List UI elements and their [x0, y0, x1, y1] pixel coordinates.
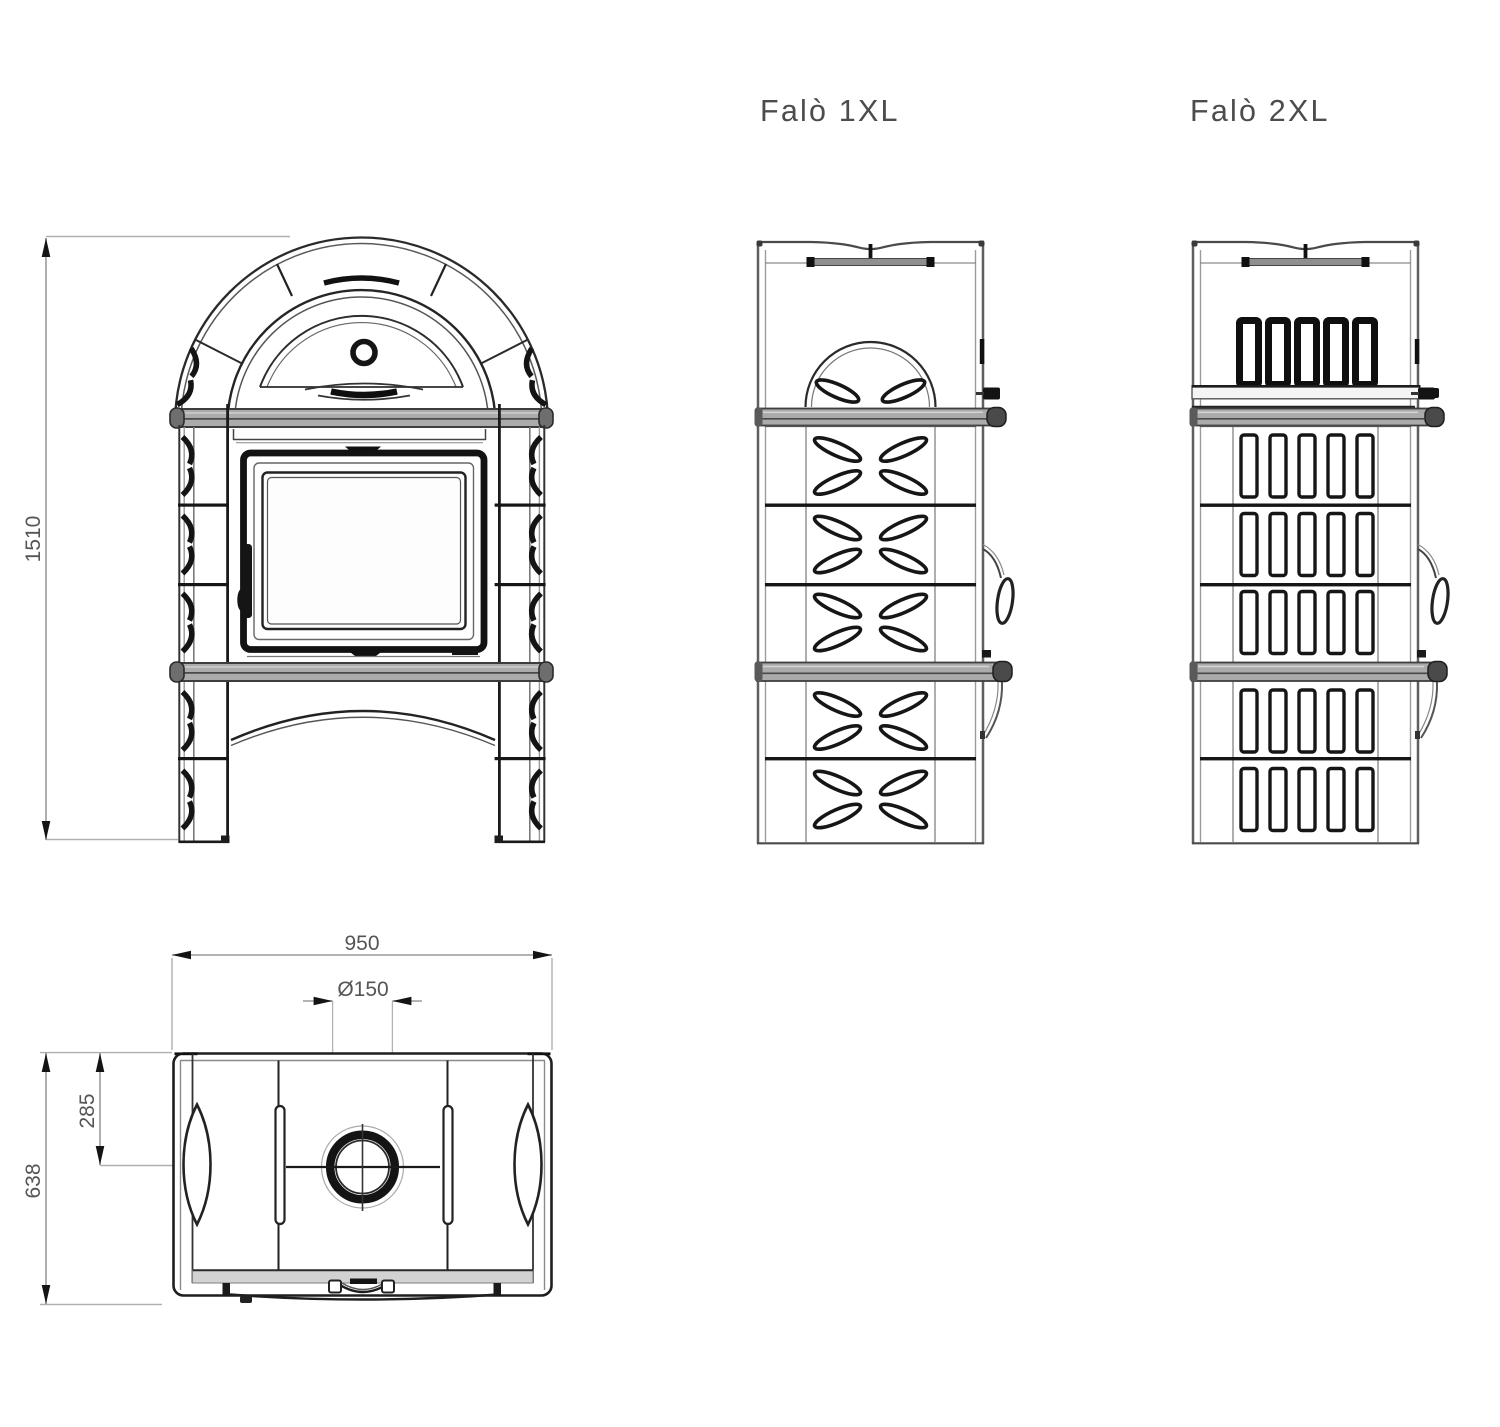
- svg-text:638: 638: [22, 1163, 45, 1198]
- svg-text:950: 950: [344, 932, 379, 955]
- svg-text:285: 285: [76, 1093, 99, 1128]
- svg-text:Falò 2XL: Falò 2XL: [1190, 94, 1330, 128]
- svg-text:1510: 1510: [22, 516, 45, 563]
- svg-text:Ø150: Ø150: [337, 978, 388, 1001]
- svg-text:Falò 1XL: Falò 1XL: [760, 94, 900, 128]
